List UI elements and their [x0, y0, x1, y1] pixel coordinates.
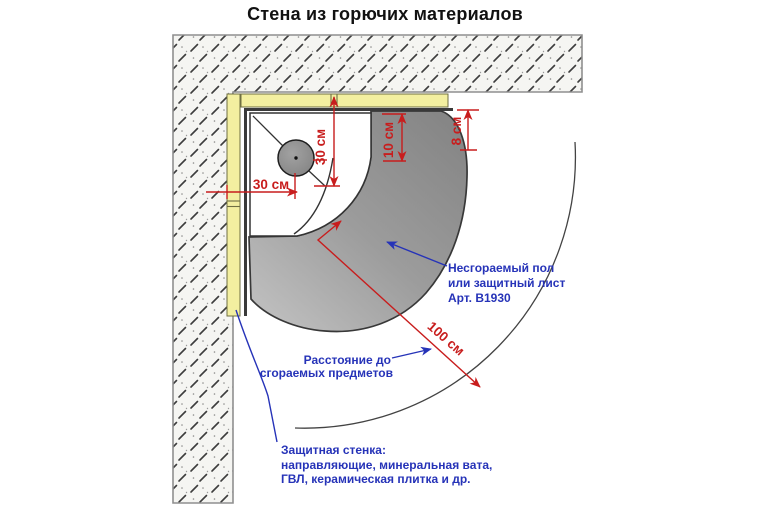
protective-wall-label-line2: направляющие, минеральная вата,: [281, 458, 492, 472]
flue-pipe-center-dot: [294, 156, 297, 159]
distance-annotation: Расстояние до сгораемых предметов: [260, 353, 393, 380]
dim-label-10: 10 см: [381, 122, 396, 158]
protective-layer-left: [227, 94, 240, 316]
distance-label-line1: Расстояние до: [304, 353, 391, 367]
leader-distance: [392, 349, 431, 358]
protective-wall-label-line1: Защитная стенка:: [281, 443, 386, 457]
stove-clearance-diagram: 30 см 30 см 10 см 8 см 100 см Несгораемы…: [0, 0, 770, 514]
dim-label-30-vertical: 30 см: [313, 129, 328, 165]
floor-plate-label-line2: или защитный лист: [448, 276, 565, 290]
protective-layer-top: [241, 94, 448, 107]
distance-label-line2: сгораемых предметов: [260, 366, 393, 380]
floor-plate-label-line3: Арт. B1930: [448, 291, 511, 305]
floor-plate-label-line1: Несгораемый пол: [448, 261, 554, 275]
protective-wall-annotation: Защитная стенка: направляющие, минеральн…: [281, 443, 492, 486]
dim-label-100: 100 см: [425, 319, 468, 359]
dim-label-8: 8 см: [449, 117, 464, 146]
diagram-stage: Стена из горючих материалов: [0, 0, 770, 514]
dim-label-30-horizontal: 30 см: [253, 177, 289, 192]
floor-plate-annotation: Несгораемый пол или защитный лист Арт. B…: [448, 261, 565, 305]
protective-wall-label-line3: ГВЛ, керамическая плитка и др.: [281, 472, 471, 486]
